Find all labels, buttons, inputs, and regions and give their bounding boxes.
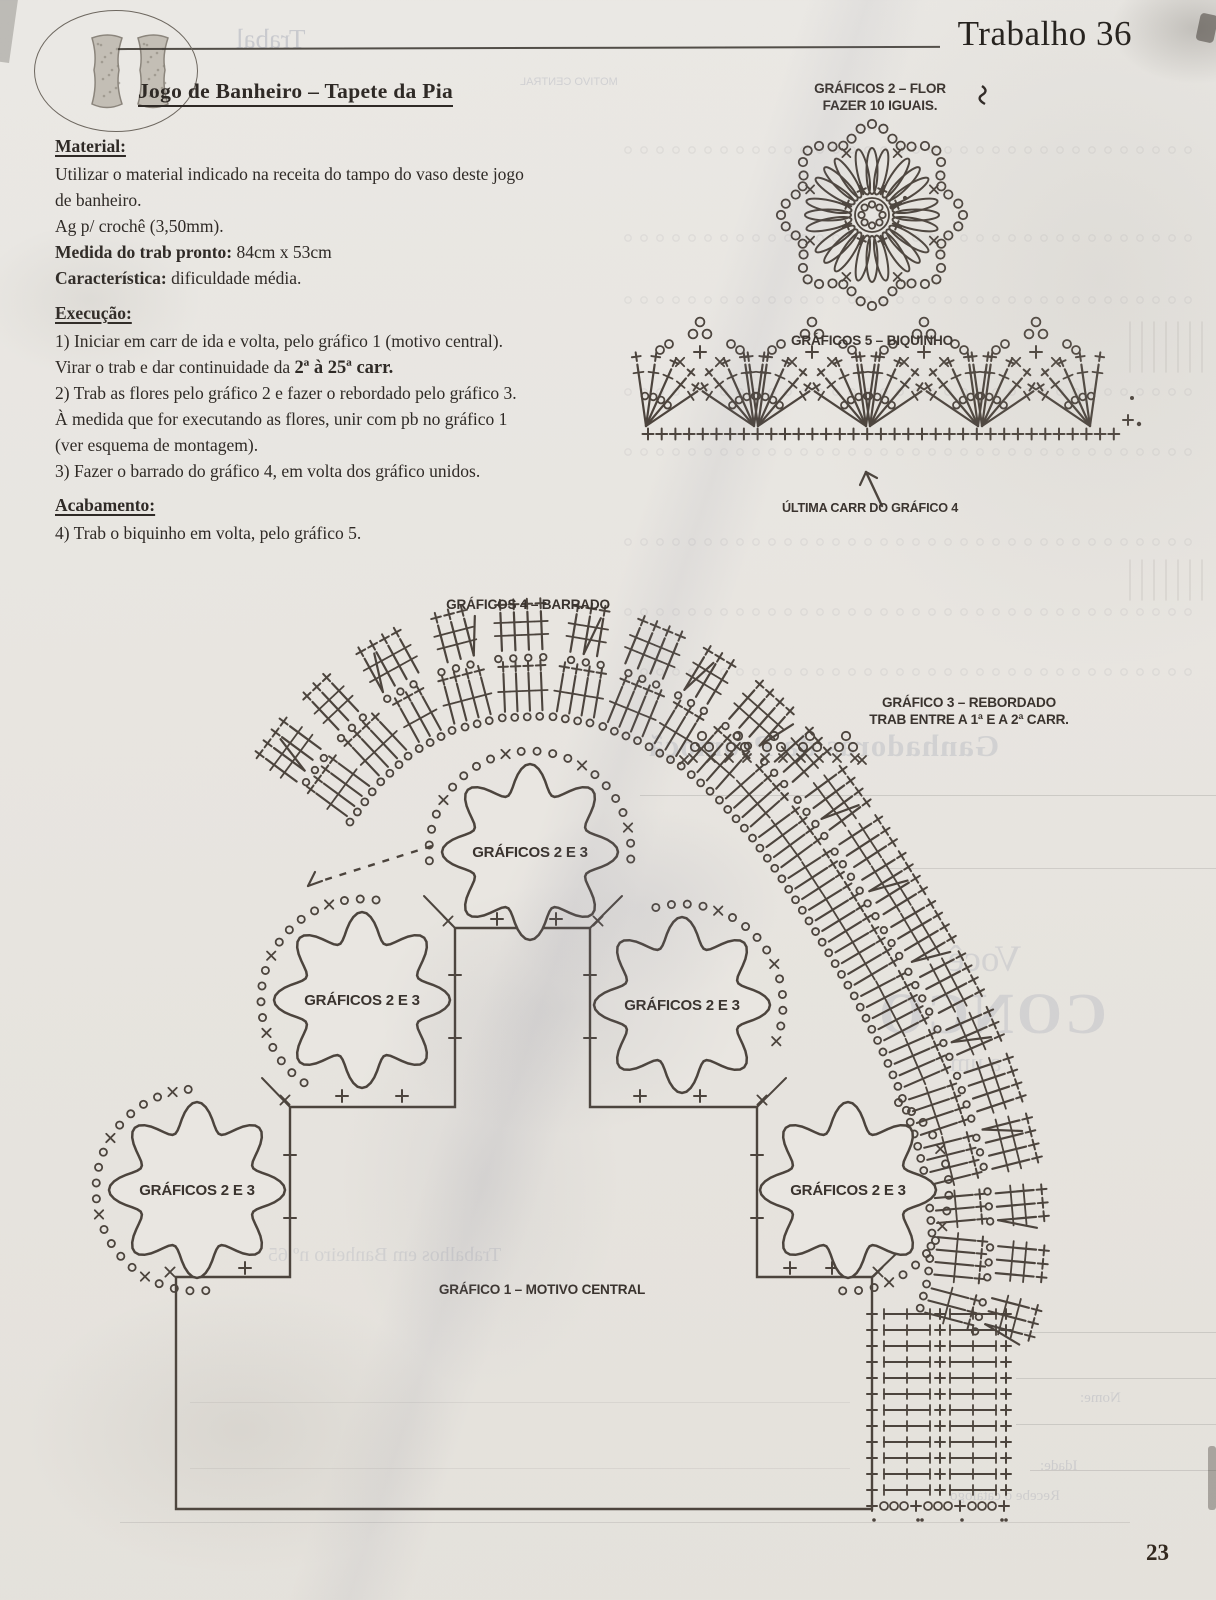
acabamento-step: 4) Trab o biquinho em volta, pelo gráfic… [55,520,361,546]
material-feature-value: dificuldade média. [167,268,302,288]
motif-label-mid-left: GRÁFICOS 2 E 3 [277,992,447,1009]
motif-label-top: GRÁFICOS 2 E 3 [445,844,615,861]
row-grid-stitches [867,1309,1011,1522]
execucao-step: (ver esquema de montagem). [55,432,258,458]
execucao-step: 3) Fazer o barrado do gráfico 4, em volt… [55,458,480,484]
execucao-step: À medida que for executando as flores, u… [55,406,507,432]
material-measure-value: 84cm x 53cm [232,242,332,262]
page-header-title: Trabalho 36 [900,14,1132,54]
grafico3-label-line2: TRAB ENTRE A 1ª E A 2ª CARR. [869,711,1069,727]
grafico2-label-line2: FAZER 10 IGUAIS. [823,97,938,113]
grafico1-label: GRÁFICO 1 – MOTIVO CENTRAL [397,1281,688,1298]
material-line: Ag p/ crochê (3,50mm). [55,213,224,239]
magazine-towels-logo [34,10,198,132]
article-title: Jogo de Banheiro – Tapete da Pia [138,79,453,107]
execucao-step: 2) Trab as flores pelo gráfico 2 e fazer… [55,380,517,406]
acabamento-heading: Acabamento: [55,492,155,518]
material-line: Utilizar o material indicado na receita … [55,161,524,187]
material-line: Característica: dificuldade média. [55,265,301,291]
execucao-heading: Execução: [55,300,132,326]
material-feature-label: Característica: [55,268,167,288]
grafico2-label-line1: GRÁFICOS 2 – FLOR [814,80,946,96]
execucao-step-bold: 2ª à 25ª carr. [294,358,393,378]
material-measure-label: Medida do trab pronto: [55,242,232,262]
page-number: 23 [1146,1540,1169,1566]
motif-label-mid-right: GRÁFICOS 2 E 3 [597,997,767,1014]
execucao-step: 1) Iniciar em carr de ida e volta, pelo … [55,328,503,354]
material-heading: Material: [55,133,126,159]
flower-motifs-graficos2e3 [109,764,936,1278]
grafico3-label-line1: GRÁFICO 3 – REBORDADO [882,694,1056,710]
flower-chart-grafico2 [777,120,967,310]
ghost-chart-texture [625,147,1202,675]
motif-label-low-right: GRÁFICOS 2 E 3 [763,1182,933,1199]
grafico2-label: GRÁFICOS 2 – FLOR FAZER 10 IGUAIS. [773,80,986,114]
scanned-magazine-page: { "colors":{"paper":"#e9e6e1","ink":"#33… [0,0,1216,1600]
material-line: de banheiro. [55,187,142,213]
material-line: Medida do trab pronto: 84cm x 53cm [55,239,332,265]
grafico4-label: GRÁFICOS 4 – BARRADO [392,596,664,613]
grafico5-arrow-label: ÚLTIMA CARR DO GRÁFICO 4 [763,499,976,516]
execucao-step: Virar o trab e dar continuidade da 2ª à … [55,354,393,381]
execucao-step-prefix: Virar o trab e dar continuidade da [55,357,294,377]
motif-label-low-left: GRÁFICOS 2 E 3 [112,1182,282,1199]
grafico3-label: GRÁFICO 3 – REBORDADO TRAB ENTRE A 1ª E … [853,694,1086,728]
grafico5-label: GRÁFICOS 5 – BIQUINHO [765,332,978,349]
